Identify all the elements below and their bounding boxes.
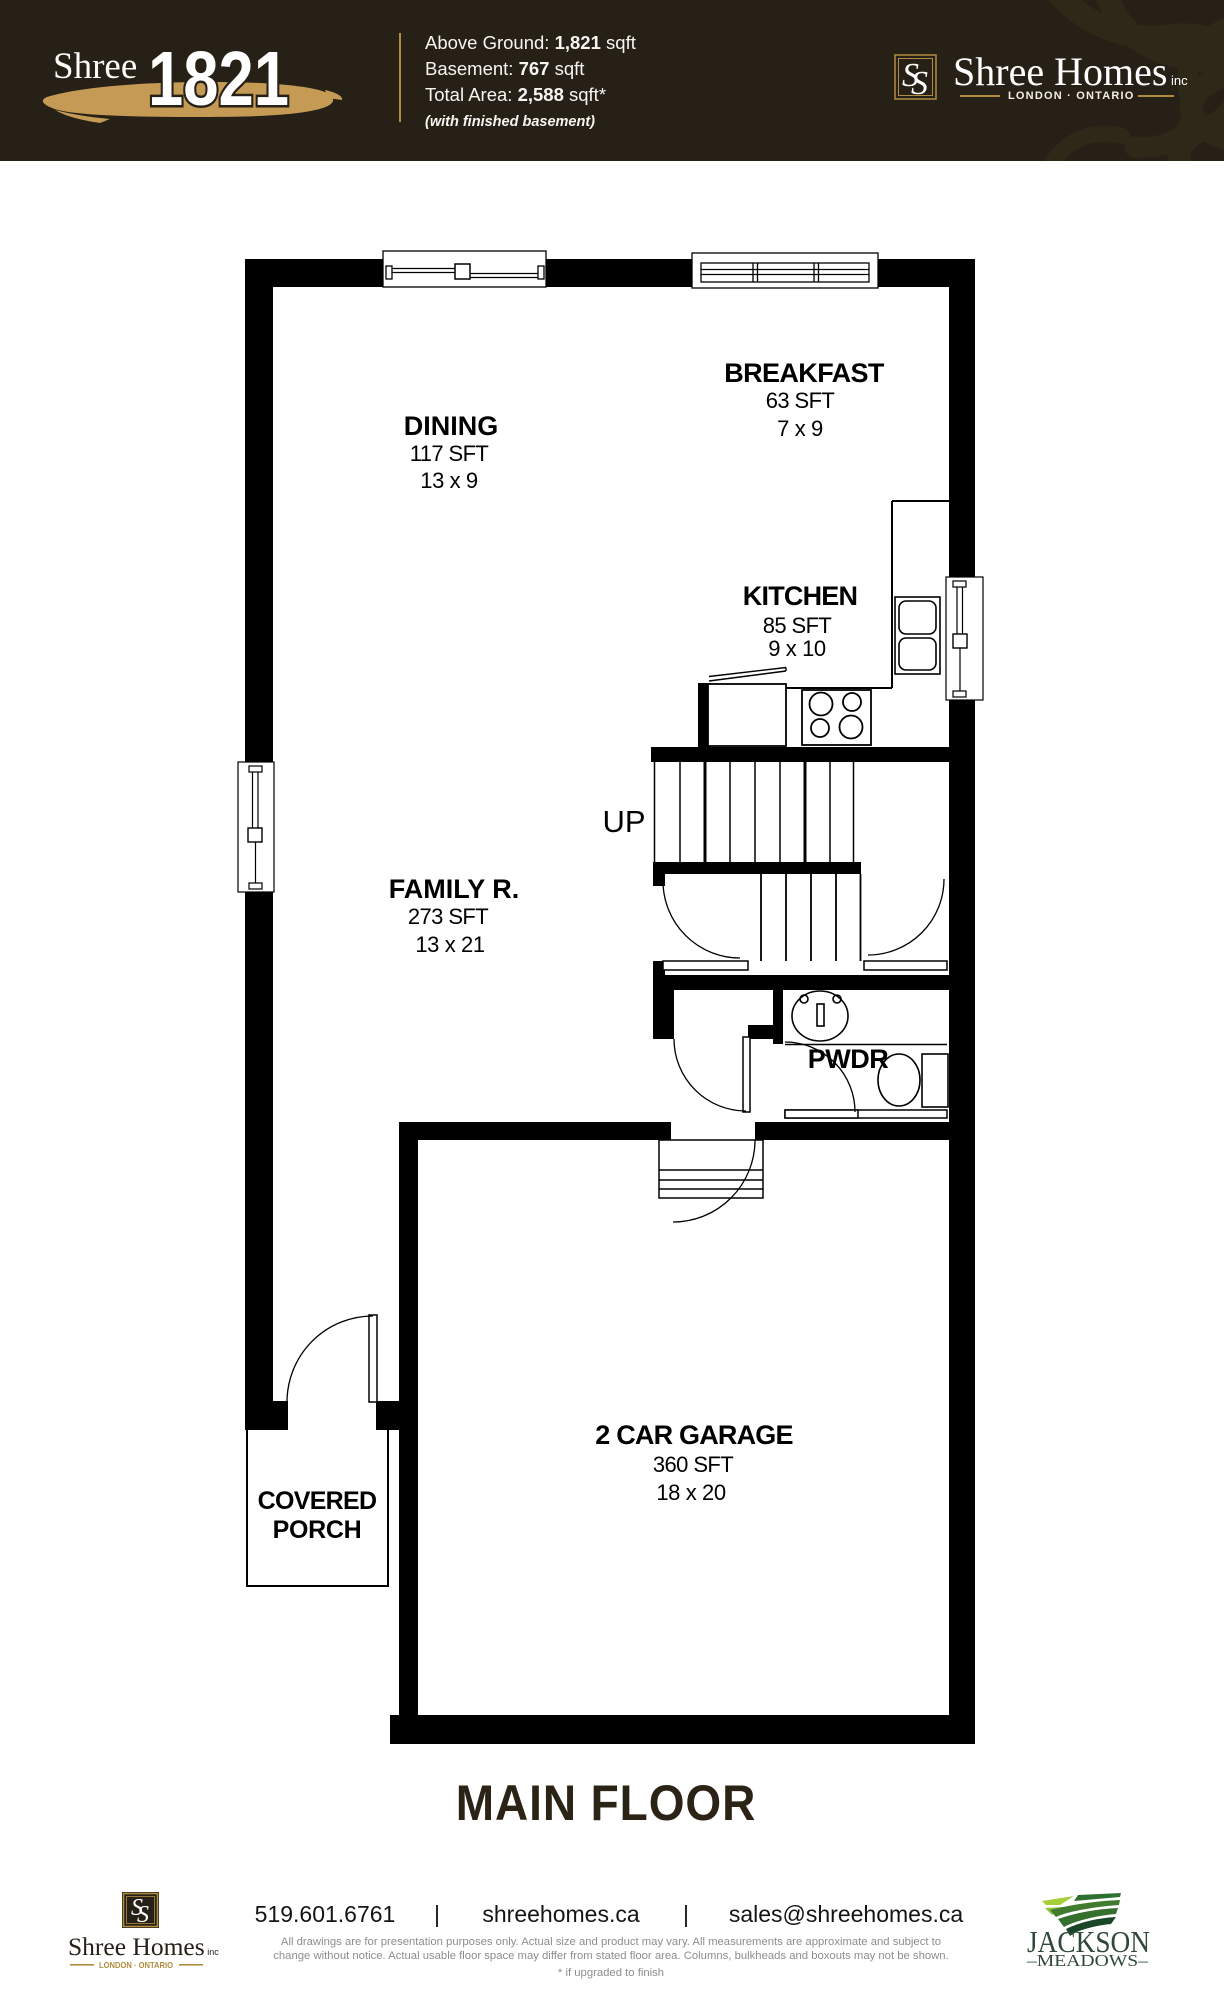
svg-text:–MEADOWS–: –MEADOWS– [1026, 1951, 1149, 1970]
svg-text:S: S [137, 1902, 149, 1928]
